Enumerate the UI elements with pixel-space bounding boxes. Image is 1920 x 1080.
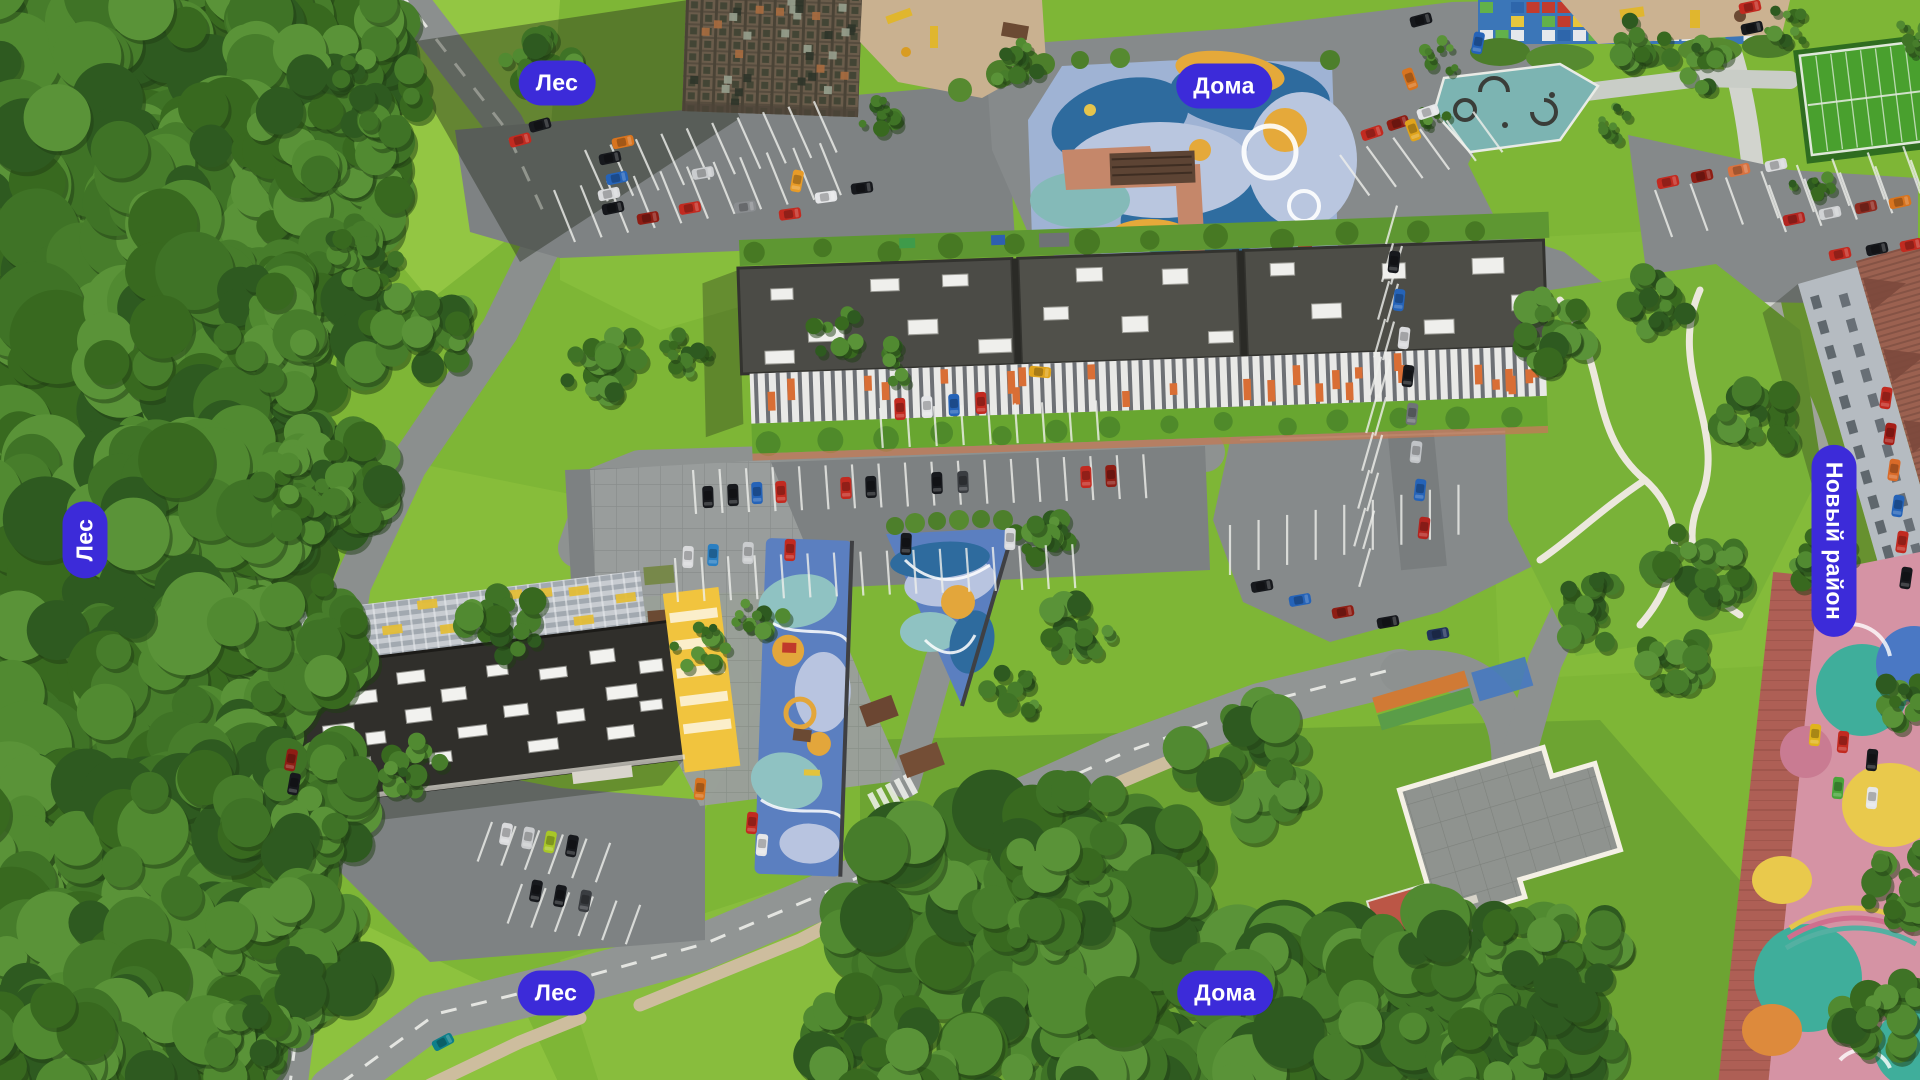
map-label-doma-bottom[interactable]: Дома: [1177, 971, 1273, 1016]
map-label-les-top[interactable]: Лес: [519, 61, 596, 106]
map-label-les-bottom[interactable]: Лес: [518, 971, 595, 1016]
sports-field: [1793, 34, 1920, 163]
apartment-building: [699, 212, 1556, 463]
masterplan-view: Лес Дома Лес Новый район Лес Дома: [0, 0, 1920, 1080]
map-label-doma-top[interactable]: Дома: [1176, 64, 1272, 109]
map-label-novyi-raion[interactable]: Новый район: [1812, 445, 1857, 637]
tower-building: [682, 0, 862, 117]
map-label-les-left[interactable]: Лес: [63, 502, 108, 579]
aerial-map: [0, 0, 1920, 1080]
